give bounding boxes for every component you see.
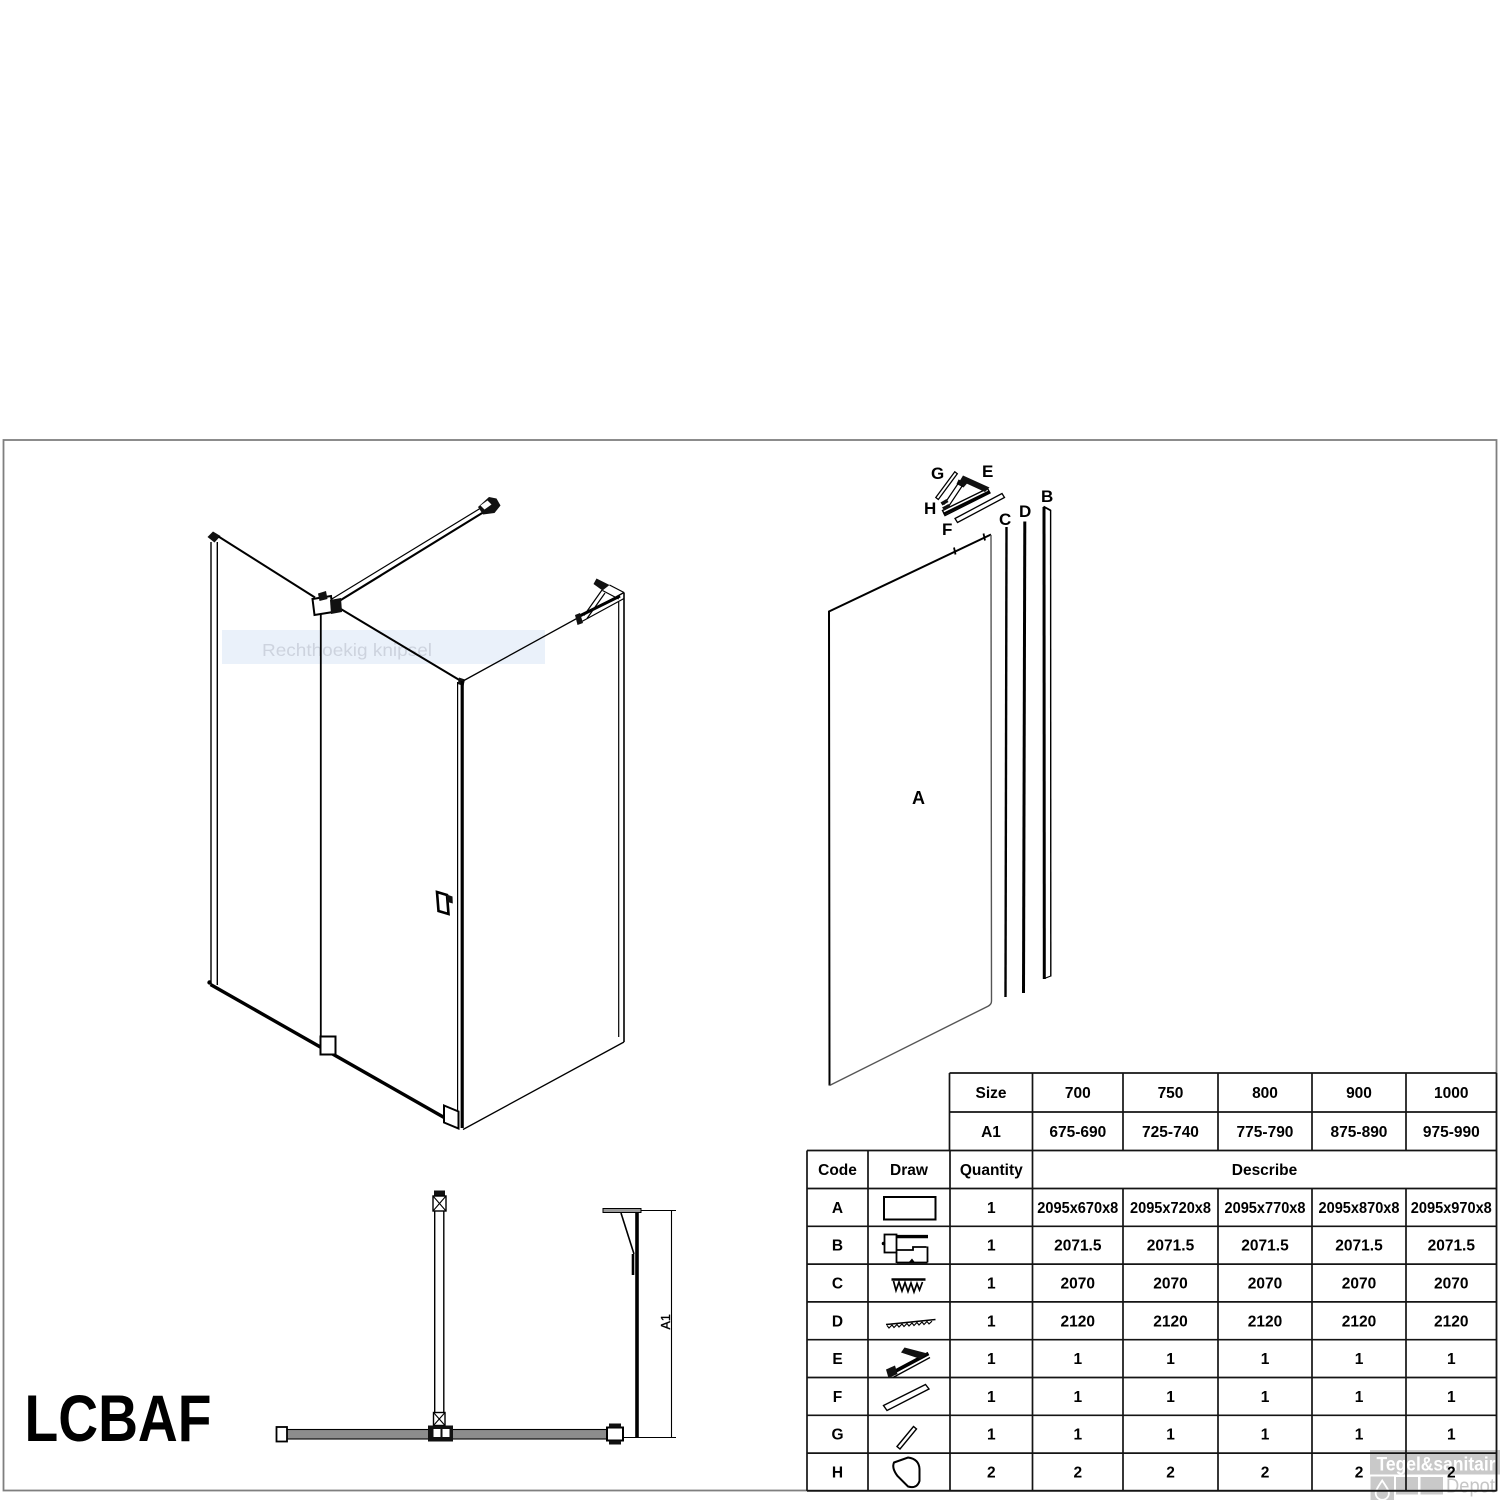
svg-text:1: 1	[1166, 1351, 1175, 1368]
svg-text:G: G	[931, 464, 944, 483]
svg-text:1: 1	[987, 1276, 996, 1293]
svg-text:A1: A1	[981, 1124, 1001, 1141]
svg-text:G: G	[831, 1427, 843, 1444]
svg-text:D: D	[1019, 502, 1031, 521]
svg-text:1: 1	[987, 1200, 996, 1217]
svg-text:2071.5: 2071.5	[1428, 1238, 1476, 1255]
svg-text:1: 1	[1261, 1427, 1270, 1444]
svg-text:975-990: 975-990	[1423, 1124, 1480, 1141]
svg-text:1000: 1000	[1434, 1085, 1468, 1102]
svg-text:Code: Code	[818, 1162, 857, 1179]
svg-text:1: 1	[1166, 1427, 1175, 1444]
svg-text:A: A	[832, 1200, 843, 1217]
svg-text:1: 1	[1073, 1351, 1082, 1368]
svg-text:1: 1	[1073, 1427, 1082, 1444]
svg-text:LCBAF: LCBAF	[25, 1381, 212, 1455]
svg-text:2095x670x8: 2095x670x8	[1037, 1200, 1118, 1217]
svg-text:1: 1	[987, 1351, 996, 1368]
svg-text:F: F	[942, 520, 952, 539]
svg-text:Rechthoekig knipsel: Rechthoekig knipsel	[262, 640, 432, 660]
svg-text:1: 1	[1355, 1351, 1364, 1368]
svg-text:2070: 2070	[1061, 1276, 1095, 1293]
svg-text:C: C	[999, 510, 1011, 529]
svg-text:2071.5: 2071.5	[1241, 1238, 1289, 1255]
svg-text:2071.5: 2071.5	[1054, 1238, 1102, 1255]
svg-text:675-690: 675-690	[1049, 1124, 1106, 1141]
svg-text:900: 900	[1346, 1085, 1372, 1102]
svg-text:875-890: 875-890	[1331, 1124, 1388, 1141]
svg-text:2120: 2120	[1342, 1313, 1376, 1330]
svg-text:Draw: Draw	[890, 1162, 929, 1179]
svg-text:D: D	[832, 1313, 843, 1330]
svg-text:1: 1	[987, 1427, 996, 1444]
svg-text:775-790: 775-790	[1237, 1124, 1294, 1141]
svg-text:2120: 2120	[1153, 1313, 1187, 1330]
svg-text:1: 1	[987, 1313, 996, 1330]
svg-text:A: A	[912, 788, 925, 808]
svg-text:F: F	[833, 1389, 842, 1406]
svg-text:2: 2	[987, 1465, 996, 1482]
svg-text:E: E	[832, 1351, 842, 1368]
svg-text:2120: 2120	[1061, 1313, 1095, 1330]
svg-text:E: E	[982, 462, 993, 481]
svg-text:H: H	[832, 1465, 843, 1482]
svg-text:2071.5: 2071.5	[1147, 1238, 1195, 1255]
svg-text:2: 2	[1447, 1465, 1456, 1482]
svg-text:2070: 2070	[1434, 1276, 1468, 1293]
svg-text:2095x970x8: 2095x970x8	[1411, 1200, 1492, 1217]
svg-text:H: H	[924, 499, 936, 518]
svg-text:1: 1	[1166, 1389, 1175, 1406]
svg-text:750: 750	[1158, 1085, 1184, 1102]
svg-text:2095x770x8: 2095x770x8	[1225, 1200, 1306, 1217]
svg-text:2120: 2120	[1434, 1313, 1468, 1330]
svg-text:1: 1	[987, 1238, 996, 1255]
svg-text:1: 1	[987, 1389, 996, 1406]
svg-text:1: 1	[1447, 1389, 1456, 1406]
svg-text:2: 2	[1073, 1465, 1082, 1482]
svg-text:2071.5: 2071.5	[1335, 1238, 1383, 1255]
svg-text:2070: 2070	[1342, 1276, 1376, 1293]
svg-text:1: 1	[1447, 1427, 1456, 1444]
svg-text:C: C	[832, 1276, 843, 1293]
svg-text:1: 1	[1073, 1389, 1082, 1406]
svg-text:725-740: 725-740	[1142, 1124, 1199, 1141]
svg-text:800: 800	[1252, 1085, 1278, 1102]
svg-text:2095x720x8: 2095x720x8	[1130, 1200, 1211, 1217]
svg-text:1: 1	[1447, 1351, 1456, 1368]
svg-text:1: 1	[1355, 1427, 1364, 1444]
svg-text:B: B	[1041, 487, 1053, 506]
svg-text:2: 2	[1166, 1465, 1175, 1482]
svg-text:1: 1	[1261, 1389, 1270, 1406]
svg-text:Tegel&sanitair: Tegel&sanitair	[1377, 1454, 1496, 1476]
svg-text:Quantity: Quantity	[960, 1162, 1023, 1179]
svg-text:Describe: Describe	[1232, 1162, 1298, 1179]
svg-text:2070: 2070	[1153, 1276, 1187, 1293]
svg-text:1: 1	[1261, 1351, 1270, 1368]
svg-text:B: B	[832, 1238, 843, 1255]
svg-text:2070: 2070	[1248, 1276, 1282, 1293]
svg-text:2120: 2120	[1248, 1313, 1282, 1330]
svg-text:2095x870x8: 2095x870x8	[1319, 1200, 1400, 1217]
svg-text:1: 1	[1355, 1389, 1364, 1406]
svg-text:Size: Size	[975, 1085, 1006, 1102]
svg-text:700: 700	[1065, 1085, 1091, 1102]
svg-text:A1: A1	[659, 1314, 673, 1329]
svg-text:2: 2	[1355, 1465, 1364, 1482]
svg-text:2: 2	[1261, 1465, 1270, 1482]
